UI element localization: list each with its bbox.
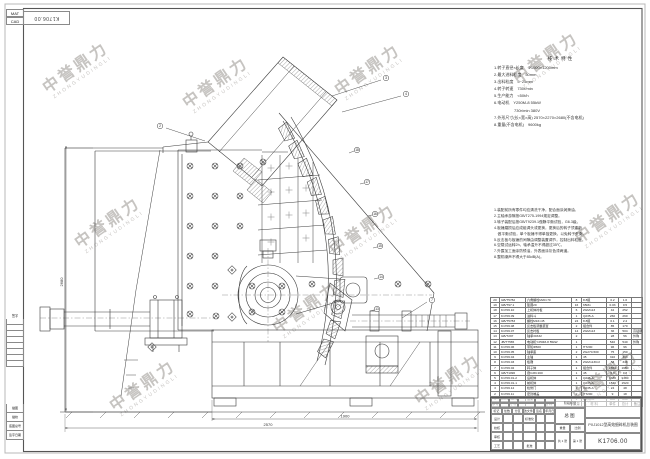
title-block-middle: 阶段标记 总图 重量 比例 共 1 张 第 1 张 — [555, 398, 585, 450]
corner-mark-row2: CAD — [6, 17, 24, 25]
housing — [95, 113, 434, 331]
dimensions — [65, 148, 478, 432]
drive-shaft — [40, 296, 187, 353]
margin-label: 描校 — [6, 413, 24, 422]
stage-label: 阶段标记 — [555, 398, 585, 408]
spec-line: 4.转子转速 730r/min — [494, 85, 628, 92]
margin-label: 描图 — [6, 404, 24, 413]
machine-section — [40, 57, 485, 432]
svg-text:13: 13 — [375, 307, 379, 311]
svg-text:4: 4 — [405, 92, 407, 96]
svg-text:14: 14 — [379, 275, 383, 279]
spec-title: 技术特性 — [494, 56, 628, 62]
sheet-number: 第 1 张 — [570, 432, 585, 450]
base-frame — [60, 330, 485, 418]
margin-label: 底图总号 — [6, 422, 24, 431]
bolt-field — [148, 159, 431, 351]
grate-plates — [258, 155, 327, 263]
dim-height: 2680 — [59, 277, 64, 287]
drawing-title: PXJ1012型高效细碎机总装图 — [585, 418, 641, 433]
dim-inner: 1900 — [341, 414, 351, 419]
spec-line: 6.电动机 Y250M-8 55kW — [494, 99, 628, 106]
adjusting-rod — [324, 283, 467, 396]
signature-row: 校核 — [491, 423, 555, 432]
bom-table: 20GB/T5782六角螺栓M20×70 88.8级 0.21.6 19GB/T… — [490, 297, 642, 407]
flipped-drawing-number: K1706.00 — [23, 11, 70, 25]
dimension-texts: 2570 1900 2680 — [59, 277, 350, 427]
title-block: 标记处数分区更改文件号签名年月日 设计 标准化 校核 — [490, 397, 642, 451]
svg-text:2: 2 — [159, 124, 161, 128]
drawing-sheet: 中誉鼎力ZHONGYUDINGLI 中誉鼎力ZHONGYUDINGLI 中誉鼎力… — [0, 0, 650, 459]
spec-line: 1.转子直径×长度 Φ1000×1200mm — [494, 64, 628, 71]
signature-row: 工艺 批准 — [491, 441, 555, 450]
scale-label: 比例 — [570, 424, 585, 432]
corner-mark-row1: MAT — [6, 9, 24, 17]
signature-row: 审核 — [491, 432, 555, 441]
title-block-signature-grid: 标记处数分区更改文件号签名年月日 设计 标准化 校核 — [491, 398, 555, 450]
spec-line: 3.出料粒度 5~25mm — [494, 78, 628, 85]
title-block-right: PXJ1012型高效细碎机总装图 K1706.00 — [585, 398, 641, 450]
weight-label: 重量 — [555, 424, 570, 432]
spec-line: 730r/min 380V — [494, 107, 628, 114]
spec-table: 技术特性 1.转子直径×长度 Φ1000×1200mm2.最大进料粒度 50mm… — [494, 56, 628, 128]
svg-text:16: 16 — [373, 212, 377, 216]
balloon-leaders — [166, 80, 427, 318]
margin-label-table: 描图描校底图总号签字日期 — [6, 404, 24, 440]
spec-line: 8.重量(不含电机) 9600kg — [494, 121, 628, 128]
drawing-number: K1706.00 — [585, 433, 641, 450]
signature-row: 设计 标准化 — [491, 414, 555, 423]
note-line: 8.整机噪声不得大于85dB(A)。 — [494, 255, 642, 261]
balloons — [157, 75, 435, 312]
sheet-total: 共 1 张 — [555, 432, 570, 450]
spec-line: 2.最大进料粒度 50mm — [494, 71, 628, 78]
doc-type: 总图 — [555, 408, 585, 424]
spec-line: 7.外形尺寸(长×宽×高) 2570×2270×2680(不含电机) — [494, 114, 628, 121]
spec-line: 5.生产能力 <50t/h — [494, 92, 628, 99]
support-frame — [65, 148, 212, 412]
dim-width: 2570 — [264, 422, 274, 427]
rotor — [238, 240, 367, 325]
svg-text:18: 18 — [355, 148, 359, 152]
margin-label: 签字日期 — [6, 431, 24, 440]
revision-strip: 签字 — [6, 313, 24, 367]
tech-notes: 1.装配前所有零件均应清洗干净，配合面涂润滑油。2.主轴承游隙按GB/T275-… — [494, 208, 642, 261]
svg-text:7: 7 — [431, 298, 433, 302]
svg-text:15: 15 — [378, 244, 382, 248]
svg-text:17: 17 — [365, 180, 369, 184]
svg-text:3: 3 — [385, 76, 387, 80]
